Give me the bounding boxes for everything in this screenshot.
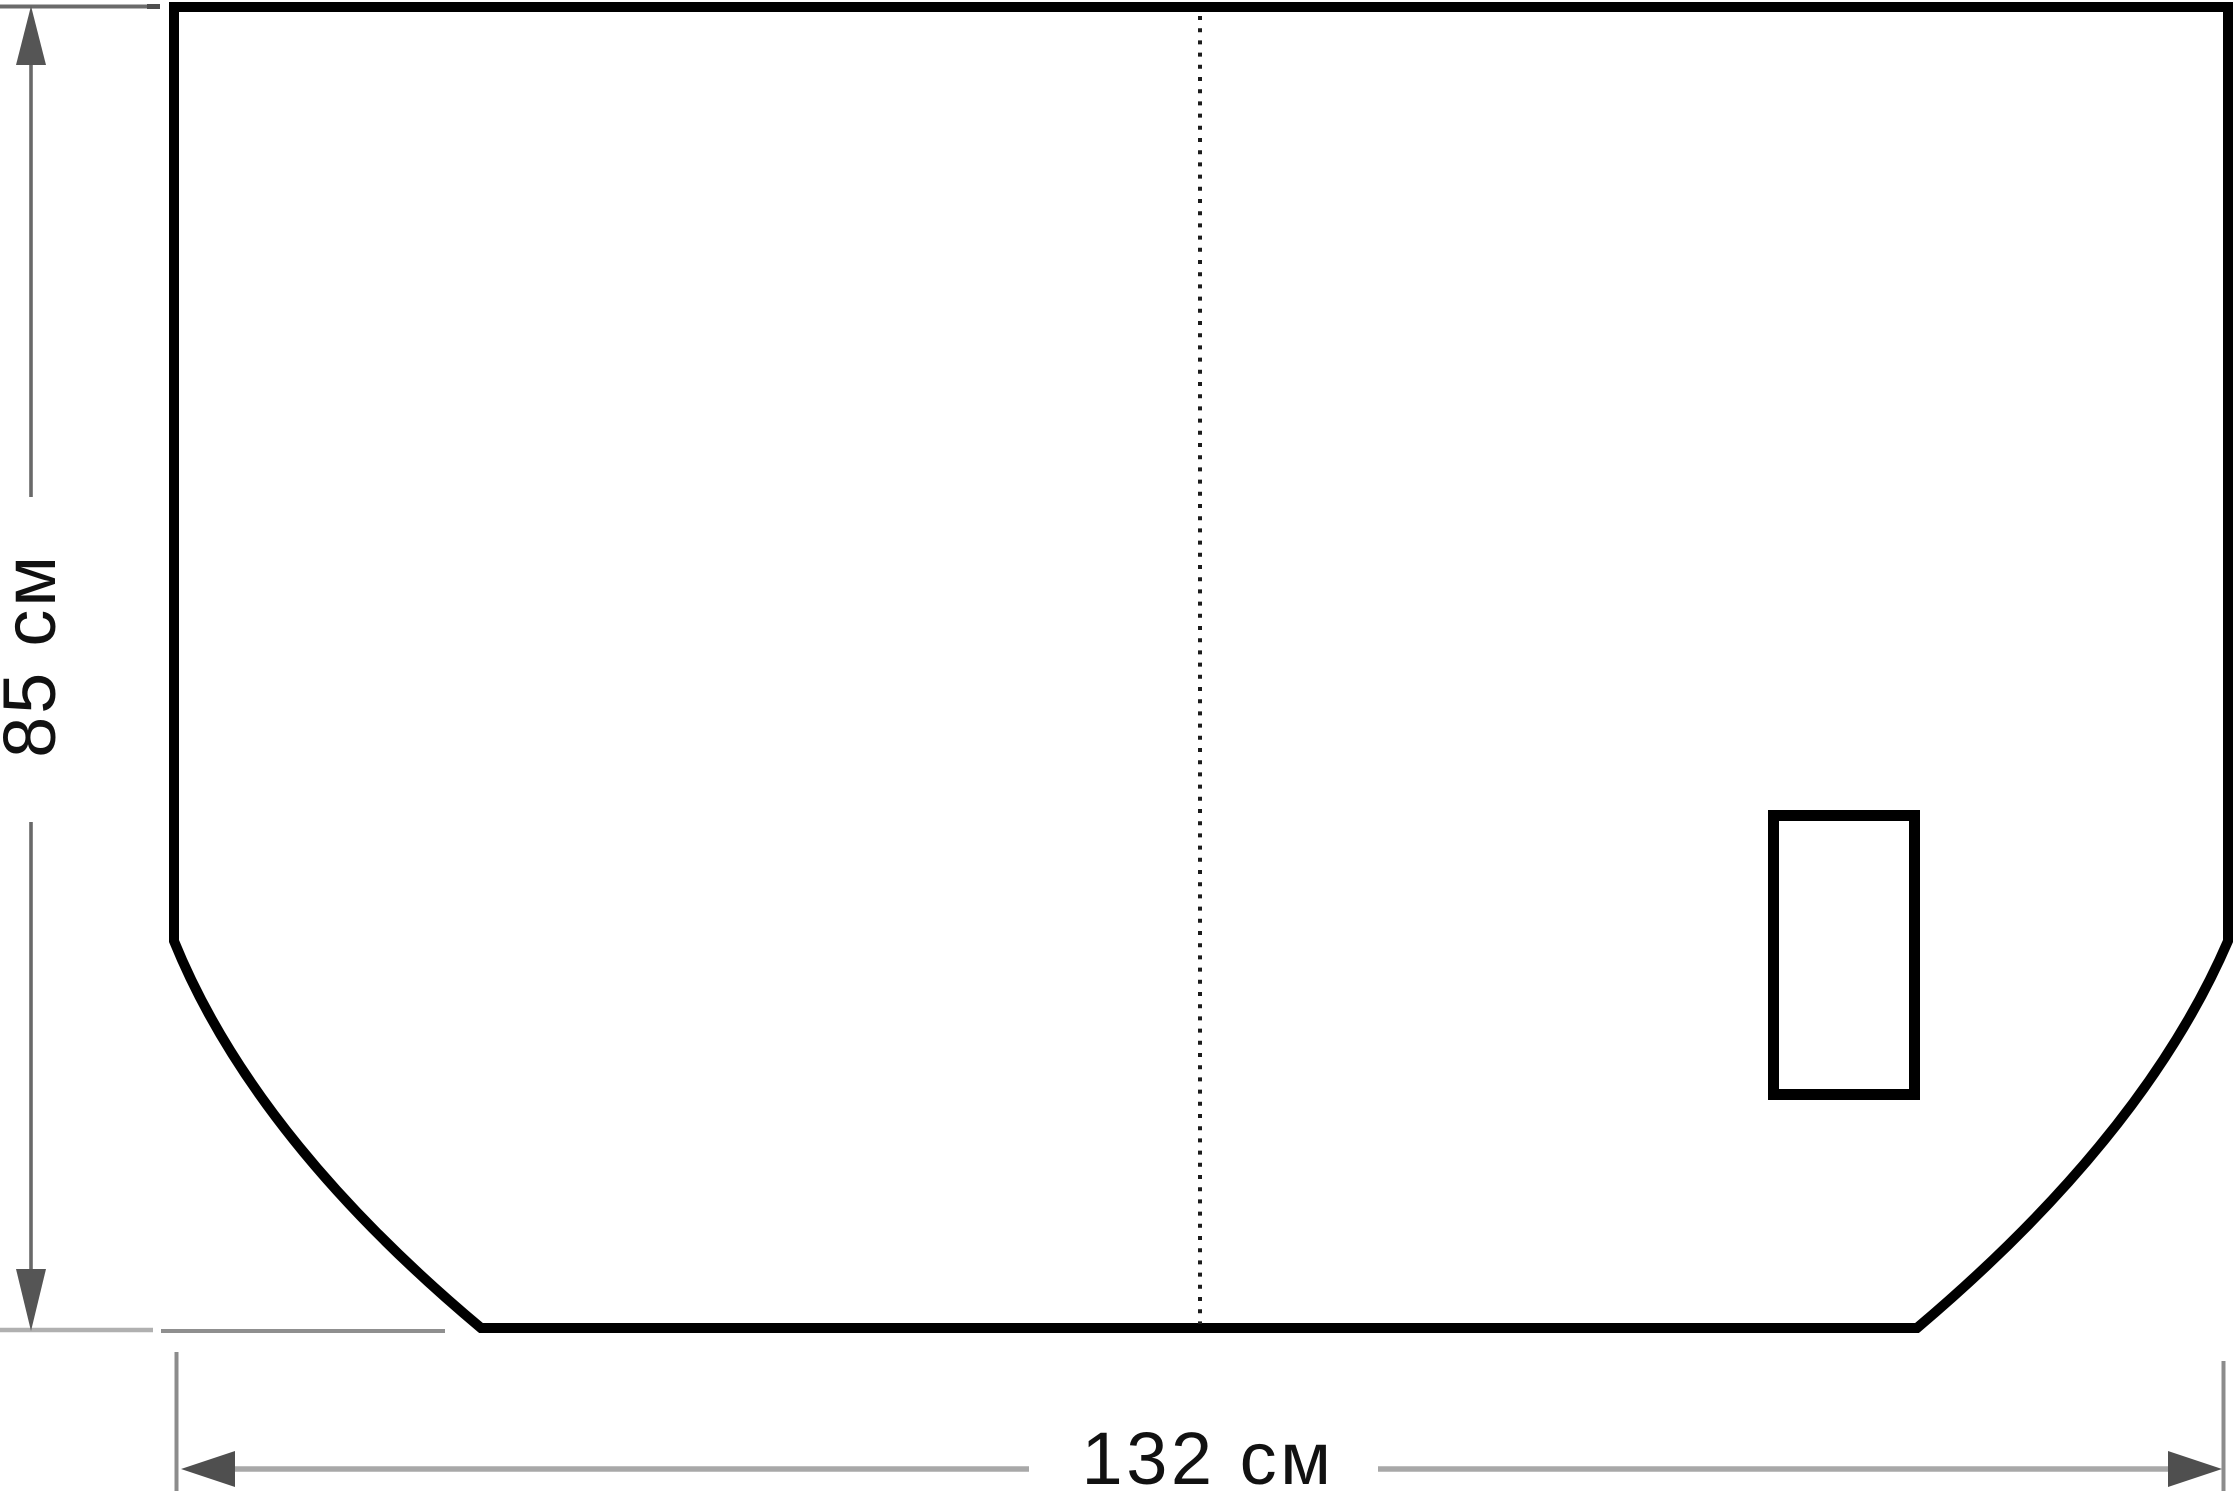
svg-text:132 см: 132 см — [1082, 1417, 1335, 1491]
svg-text:85 см: 85 см — [0, 553, 71, 758]
